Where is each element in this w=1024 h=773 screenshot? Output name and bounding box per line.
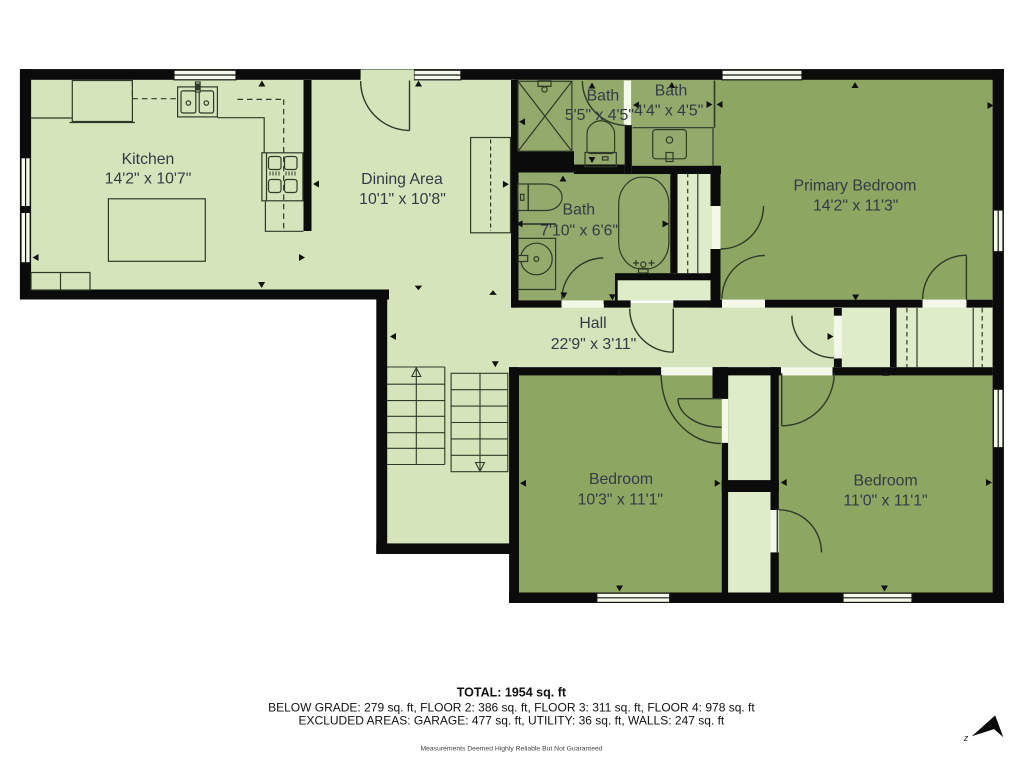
svg-text:Bath: Bath	[587, 87, 620, 104]
svg-text:Bedroom: Bedroom	[589, 471, 653, 488]
svg-text:Hall: Hall	[579, 315, 606, 332]
svg-text:EXCLUDED AREAS: GARAGE: 477 sq: EXCLUDED AREAS: GARAGE: 477 sq. ft, UTIL…	[299, 713, 725, 727]
svg-text:22'9" x 3'11": 22'9" x 3'11"	[551, 336, 636, 353]
svg-text:Bath: Bath	[655, 83, 688, 100]
svg-text:Bath: Bath	[563, 202, 596, 219]
svg-text:5'5" x 4'5": 5'5" x 4'5"	[565, 107, 634, 124]
svg-text:14'2" x 10'7": 14'2" x 10'7"	[105, 171, 192, 188]
svg-text:10'1" x 10'8": 10'1" x 10'8"	[359, 191, 446, 208]
svg-text:Dining Area: Dining Area	[361, 171, 443, 188]
svg-text:11'0" x 11'1": 11'0" x 11'1"	[843, 492, 927, 509]
svg-text:z: z	[963, 733, 969, 743]
svg-text:10'3" x 11'1": 10'3" x 11'1"	[578, 491, 663, 508]
svg-text:4'4" x 4'5": 4'4" x 4'5"	[634, 103, 703, 120]
svg-text:Primary Bedroom: Primary Bedroom	[794, 178, 917, 195]
svg-text:Kitchen: Kitchen	[122, 151, 175, 168]
svg-text:TOTAL: 1954 sq. ft: TOTAL: 1954 sq. ft	[457, 686, 567, 700]
svg-text:7'10" x 6'6": 7'10" x 6'6"	[540, 223, 618, 240]
svg-text:Measurements Deemed Highly Rel: Measurements Deemed Highly Reliable But …	[420, 746, 602, 753]
svg-text:14'2" x 11'3": 14'2" x 11'3"	[813, 197, 898, 214]
svg-text:Bedroom: Bedroom	[854, 472, 918, 489]
